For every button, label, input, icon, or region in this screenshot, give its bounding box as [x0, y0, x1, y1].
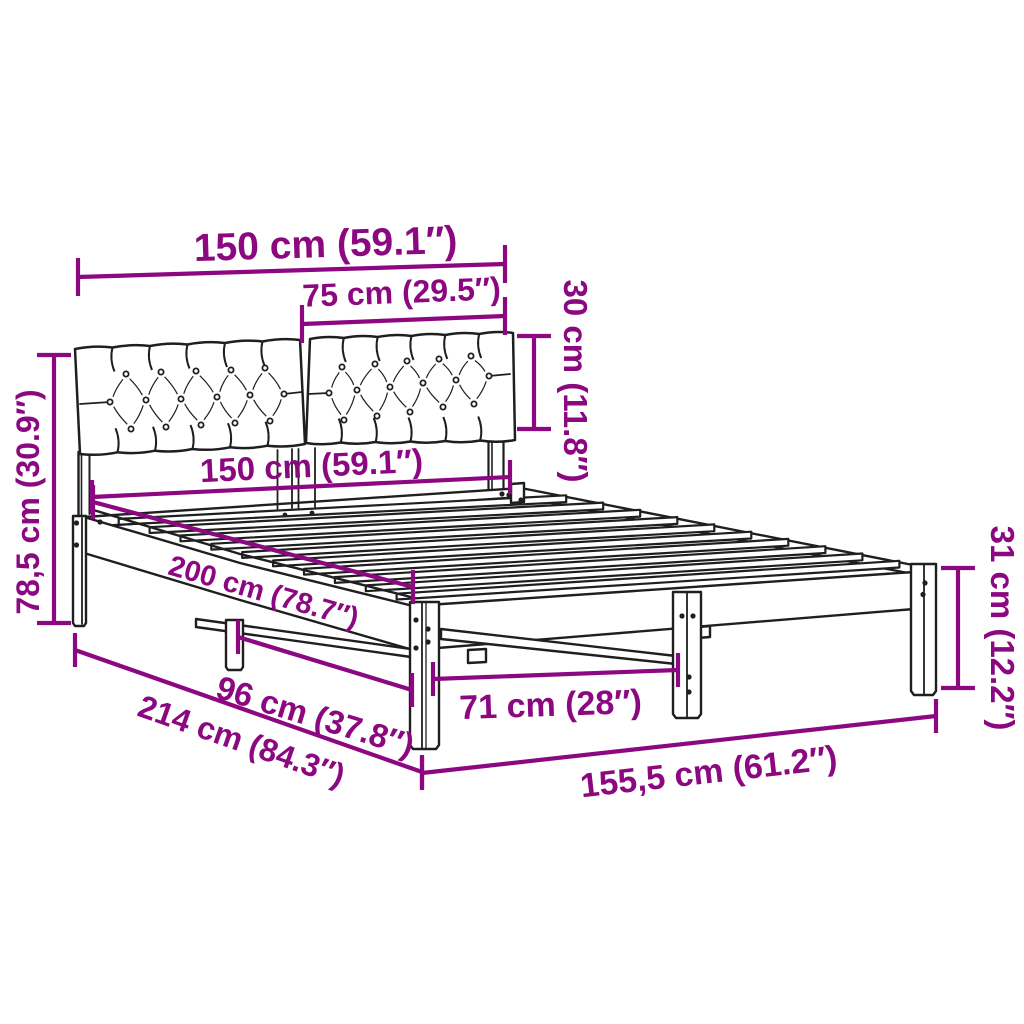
- svg-text:75 cm (29.5″): 75 cm (29.5″): [302, 270, 502, 314]
- svg-text:155,5 cm (61.2″): 155,5 cm (61.2″): [578, 739, 839, 806]
- svg-text:30 cm (11.8″): 30 cm (11.8″): [557, 280, 594, 483]
- svg-text:150 cm (59.1″): 150 cm (59.1″): [193, 219, 458, 270]
- svg-text:71 cm (28″): 71 cm (28″): [459, 683, 643, 727]
- svg-text:78,5 cm (30.9″): 78,5 cm (30.9″): [10, 389, 46, 614]
- svg-text:31 cm (12.2″): 31 cm (12.2″): [984, 526, 1021, 731]
